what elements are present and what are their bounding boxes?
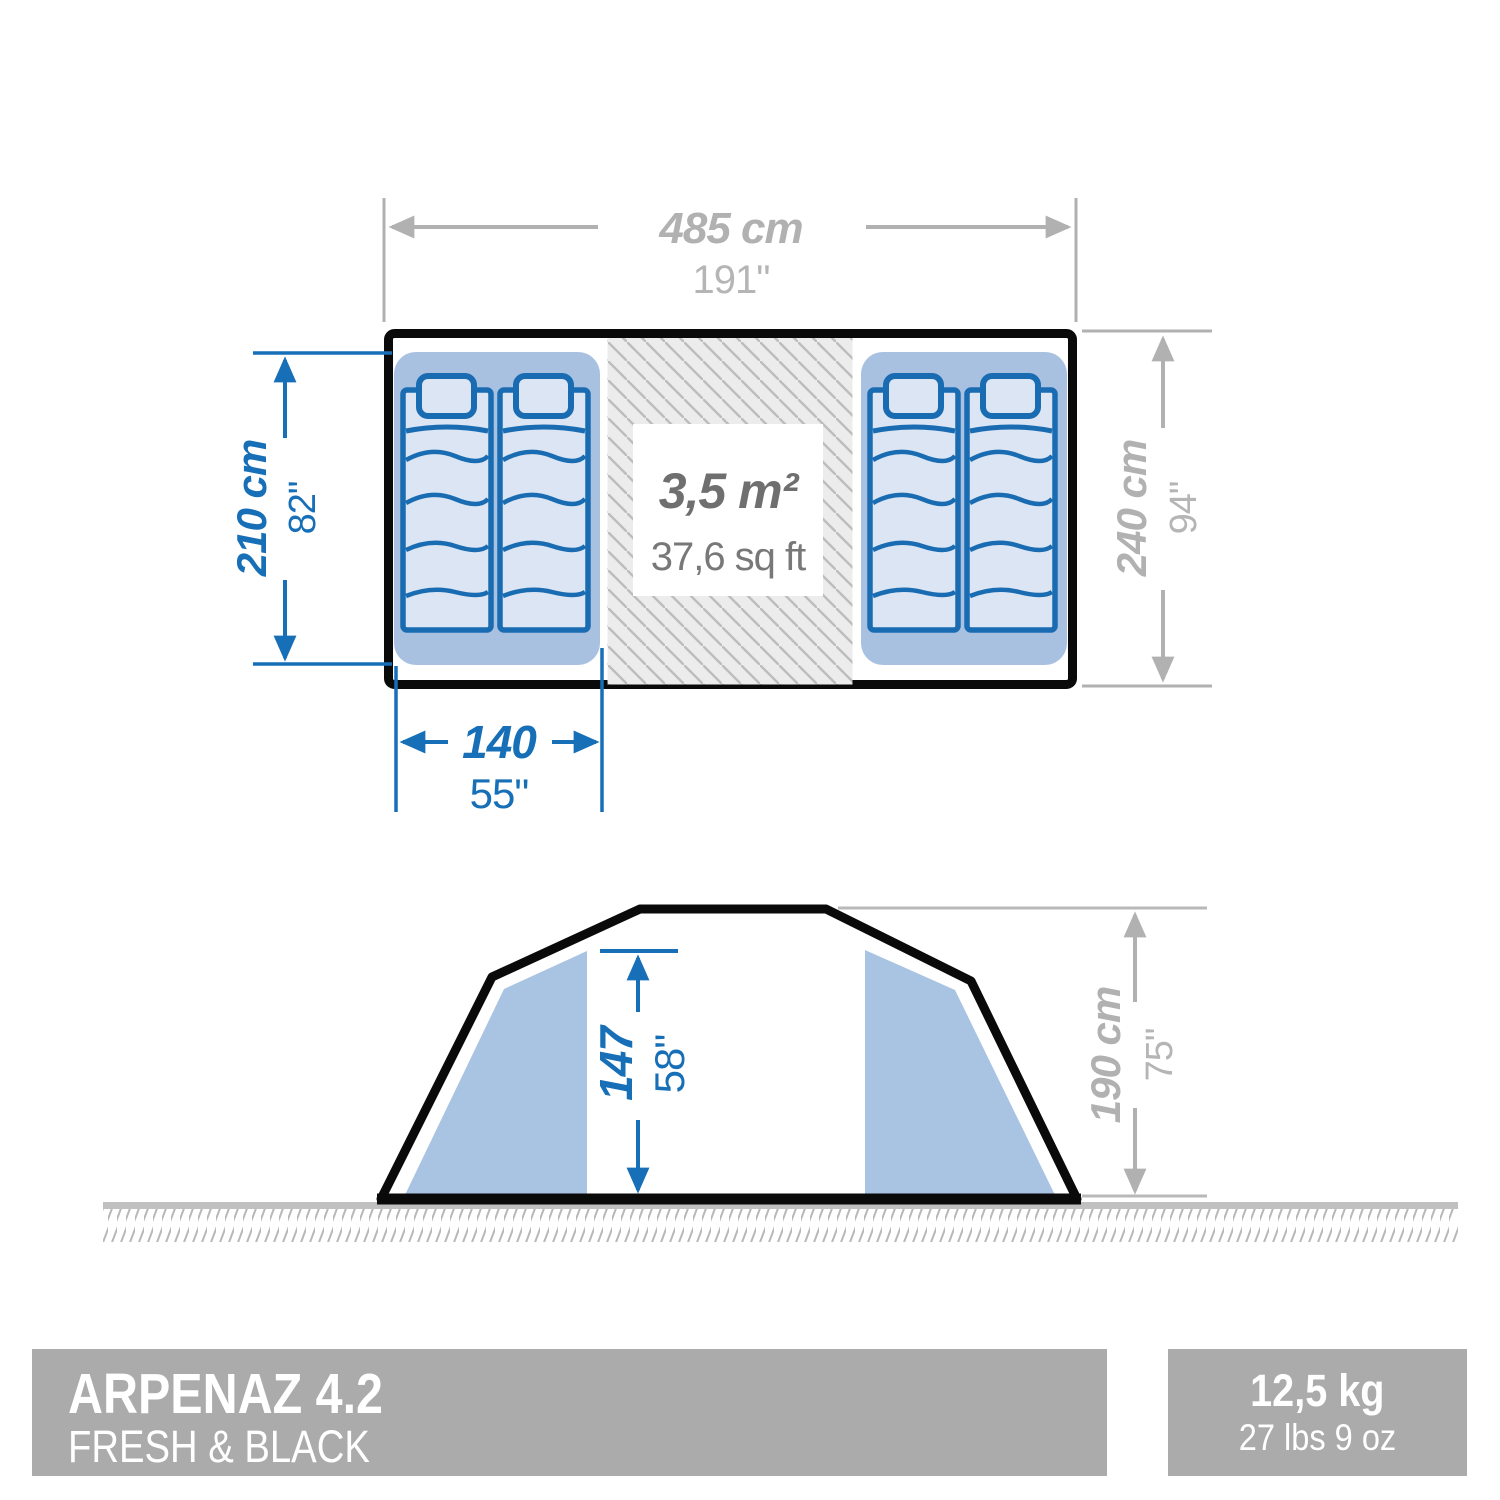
mattress-1 [403,376,491,630]
floorplan-width-dimension: 485 cm 191" [384,198,1076,322]
product-name: ARPENAZ 4.2 [68,1361,383,1427]
side-view: 147 58" 190 cm 75" [103,908,1458,1242]
width-imperial-label: 191" [693,258,770,302]
product-weight-bar: 12,5 kg 27 lbs 9 oz [1168,1349,1467,1476]
living-area-metric: 3,5 m² [659,463,800,519]
depth-dimension: 240 cm 94" [1082,331,1212,686]
mattress-4 [967,376,1055,630]
living-area-imperial: 37,6 sq ft [651,535,806,579]
sleeping-cabin-left [394,352,600,665]
cabin-length-imperial: 82" [282,482,324,535]
width-metric-label: 485 cm [658,204,802,253]
diagram-svg: 485 cm 191" 3,5 m² 37,6 sq ft [0,0,1500,1500]
cabin-length-dimension: 210 cm 82" [228,353,392,664]
mattress-2 [500,376,588,630]
depth-imperial: 94" [1163,482,1205,535]
ground-hatch [103,1209,1458,1242]
product-line: FRESH & BLACK [68,1421,370,1473]
cabin-length-metric: 210 cm [228,440,275,577]
mattress-3 [870,376,958,630]
total-height-imperial: 75" [1139,1029,1181,1082]
tent-dimensions-infographic: 485 cm 191" 3,5 m² 37,6 sq ft [0,0,1500,1500]
cabin-width-imperial: 55" [470,770,529,817]
product-name-bar: ARPENAZ 4.2 FRESH & BLACK [32,1349,1107,1476]
weight-imperial: 27 lbs 9 oz [1239,1417,1396,1460]
total-height-metric: 190 cm [1082,987,1129,1123]
interior-height-metric: 147 [590,1024,642,1101]
floor-plan: 485 cm 191" 3,5 m² 37,6 sq ft [228,198,1212,817]
sleeping-cabin-right [861,352,1067,665]
depth-metric: 240 cm [1108,440,1155,577]
cabin-width-metric: 140 [462,716,537,768]
interior-height-imperial: 58" [646,1035,693,1094]
weight-metric: 12,5 kg [1250,1365,1384,1417]
